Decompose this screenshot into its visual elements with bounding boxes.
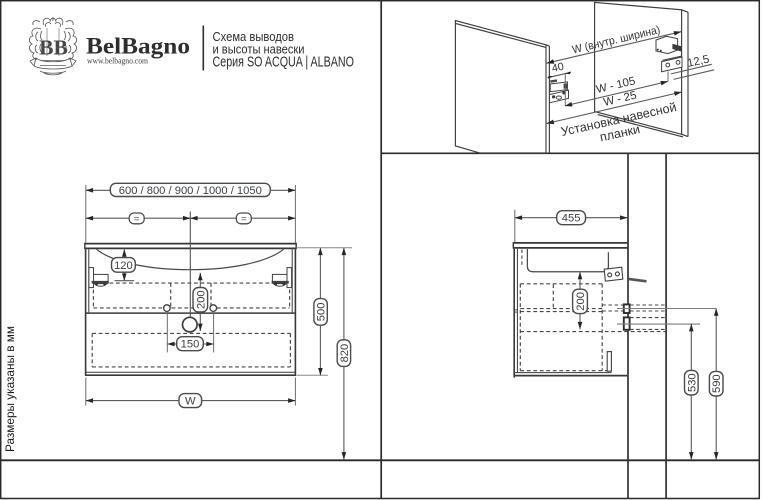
svg-text:Серия SO ACQUA | ALBANO: Серия SO ACQUA | ALBANO: [213, 55, 355, 71]
svg-text:=: =: [241, 214, 247, 225]
svg-text:W: W: [185, 396, 196, 408]
svg-text:530: 530: [686, 373, 698, 392]
svg-text:=: =: [134, 214, 140, 225]
svg-text:www.belbagno.com: www.belbagno.com: [87, 56, 148, 65]
svg-text:Размеры указаны в мм: Размеры указаны в мм: [3, 326, 17, 452]
svg-text:200: 200: [575, 292, 587, 311]
svg-text:150: 150: [181, 339, 200, 351]
svg-text:455: 455: [562, 213, 581, 225]
svg-text:590: 590: [711, 374, 723, 393]
svg-text:40: 40: [551, 61, 565, 75]
svg-text:120: 120: [114, 260, 133, 272]
svg-text:BB: BB: [39, 36, 68, 60]
svg-text:820: 820: [339, 344, 351, 363]
svg-text:200: 200: [195, 290, 207, 309]
svg-text:600 / 800 / 900 / 1000 / 1050: 600 / 800 / 900 / 1000 / 1050: [119, 185, 262, 197]
svg-text:500: 500: [316, 303, 328, 322]
